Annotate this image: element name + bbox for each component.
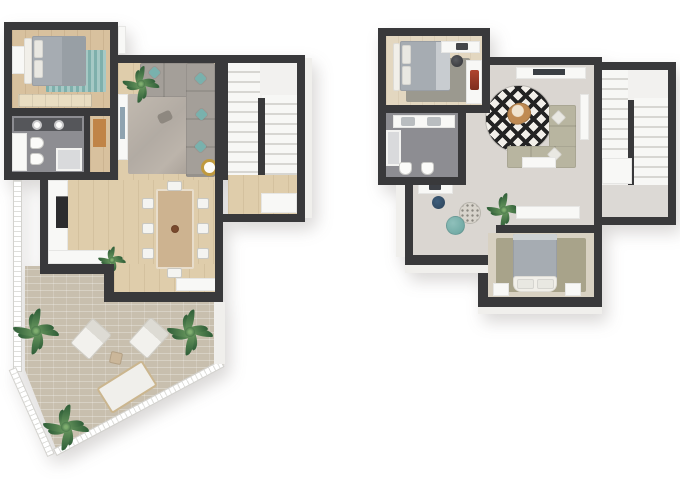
plant-leaf — [501, 193, 508, 210]
stair-steps — [634, 98, 668, 190]
stair-steps — [602, 70, 628, 170]
floorplan-canvas — [0, 0, 680, 480]
exterior-wall-face — [396, 185, 405, 257]
wall-segment — [405, 185, 413, 265]
nightstand — [565, 283, 581, 296]
stair-landing — [602, 158, 632, 184]
lounge-door — [580, 94, 589, 140]
wall-segment — [594, 57, 602, 225]
plant-leaf — [487, 207, 504, 214]
bed-pillow — [402, 66, 411, 85]
sink — [401, 117, 415, 126]
bed-pillow — [402, 45, 411, 64]
bidet — [421, 162, 434, 175]
nightstand — [493, 283, 509, 296]
wall-segment — [594, 225, 602, 307]
sink — [427, 117, 441, 126]
laptop — [456, 43, 468, 50]
bed-pillow — [537, 279, 554, 289]
bed-pillow — [517, 279, 534, 289]
sideboard — [516, 206, 580, 219]
coffee-table — [522, 157, 556, 168]
wall-segment — [378, 177, 466, 185]
wall-segment — [594, 62, 676, 70]
wall-segment — [482, 28, 490, 113]
bed-foot-fold — [513, 234, 557, 240]
wall-segment — [478, 297, 602, 307]
toilet — [399, 162, 412, 175]
wall-segment — [378, 105, 482, 113]
exterior-wall-face — [405, 265, 488, 273]
teal-pouf — [446, 216, 465, 235]
office-chair — [432, 196, 445, 209]
wardrobe-clothes — [470, 70, 479, 90]
wall-segment — [482, 57, 594, 65]
stair-lower-floor — [602, 185, 668, 217]
wall-segment — [405, 255, 488, 265]
bed-headboard — [393, 43, 400, 91]
exterior-wall-face — [478, 307, 602, 314]
upper-floor-plan — [0, 0, 680, 480]
wall-segment — [594, 217, 676, 225]
wall-segment — [496, 225, 602, 233]
wall-segment — [458, 113, 466, 185]
desk-chair — [451, 55, 463, 67]
shower — [386, 130, 401, 166]
tv-screen — [533, 69, 565, 75]
wall-segment — [668, 62, 676, 225]
wall-segment — [378, 28, 490, 36]
